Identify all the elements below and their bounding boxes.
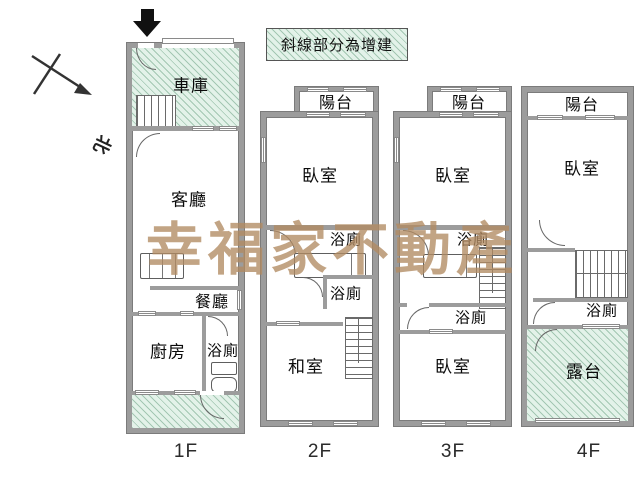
compass: 北 <box>14 42 124 132</box>
room-label-balcony-4f: 陽台 <box>565 91 599 115</box>
window <box>394 137 399 163</box>
door-arc <box>539 220 565 246</box>
door-arc <box>407 307 429 329</box>
room-label-bathroom-3f-lower: 浴廁 <box>455 307 487 328</box>
north-arrow-icon <box>14 42 124 132</box>
window <box>429 329 453 334</box>
stair-divider <box>358 317 359 363</box>
stairs-2f <box>345 317 373 379</box>
room-label-dining-room: 餐廳 <box>195 288 229 312</box>
plan-4f: 陽台 臥室 浴廁 露台 <box>522 87 633 426</box>
wall <box>527 248 575 252</box>
floor-label-2f: 2F <box>308 441 332 463</box>
floor-label-4f: 4F <box>577 441 601 463</box>
window <box>535 418 620 423</box>
room-label-bathroom-4f: 浴廁 <box>586 300 618 321</box>
window <box>288 421 313 426</box>
room-label-bedroom-2f: 臥室 <box>302 162 338 187</box>
window <box>537 115 563 120</box>
door-arc <box>136 133 160 157</box>
floor-label-3f: 3F <box>441 441 465 463</box>
wall <box>202 316 206 394</box>
room-label-terrace: 露台 <box>566 358 602 383</box>
watermark: 幸福家不動產 <box>146 204 518 286</box>
stairs-4f <box>575 250 628 298</box>
entrance-arrow-head <box>133 21 161 37</box>
room-label-garage: 車庫 <box>173 72 209 97</box>
door-arc <box>533 302 555 324</box>
window <box>466 421 491 426</box>
window <box>219 126 237 131</box>
window <box>237 290 242 310</box>
window <box>192 126 214 131</box>
room-label-tatami-room: 和室 <box>288 353 324 378</box>
stair-divider <box>576 273 627 274</box>
window <box>585 115 615 120</box>
window <box>138 311 156 316</box>
window <box>261 137 266 163</box>
window <box>333 421 358 426</box>
north-label: 北 <box>87 131 118 158</box>
window <box>421 421 446 426</box>
window <box>276 321 300 326</box>
room-label-balcony-3f: 陽台 <box>452 89 486 113</box>
garage-door <box>162 38 234 44</box>
floor-label-1f: 1F <box>174 441 198 463</box>
room-label-balcony-2f: 陽台 <box>319 89 353 113</box>
room-label-bedroom-3f-rear: 臥室 <box>435 353 471 378</box>
legend-box: 斜線部分為增建 <box>266 28 408 61</box>
floorplan-canvas: 北 斜線部分為增建 車庫 客廳 餐廳 廚房 浴廁 <box>0 0 640 480</box>
stairs-1f <box>136 95 176 128</box>
sink <box>211 362 237 375</box>
legend-text: 斜線部分為增建 <box>281 34 393 55</box>
door-arc <box>208 316 228 336</box>
room-label-bedroom-3f-front: 臥室 <box>435 162 471 187</box>
room-label-bathroom-1f: 浴廁 <box>207 340 239 361</box>
window <box>180 311 194 316</box>
room-label-kitchen: 廚房 <box>150 338 186 363</box>
room-label-bedroom-4f: 臥室 <box>564 155 600 180</box>
